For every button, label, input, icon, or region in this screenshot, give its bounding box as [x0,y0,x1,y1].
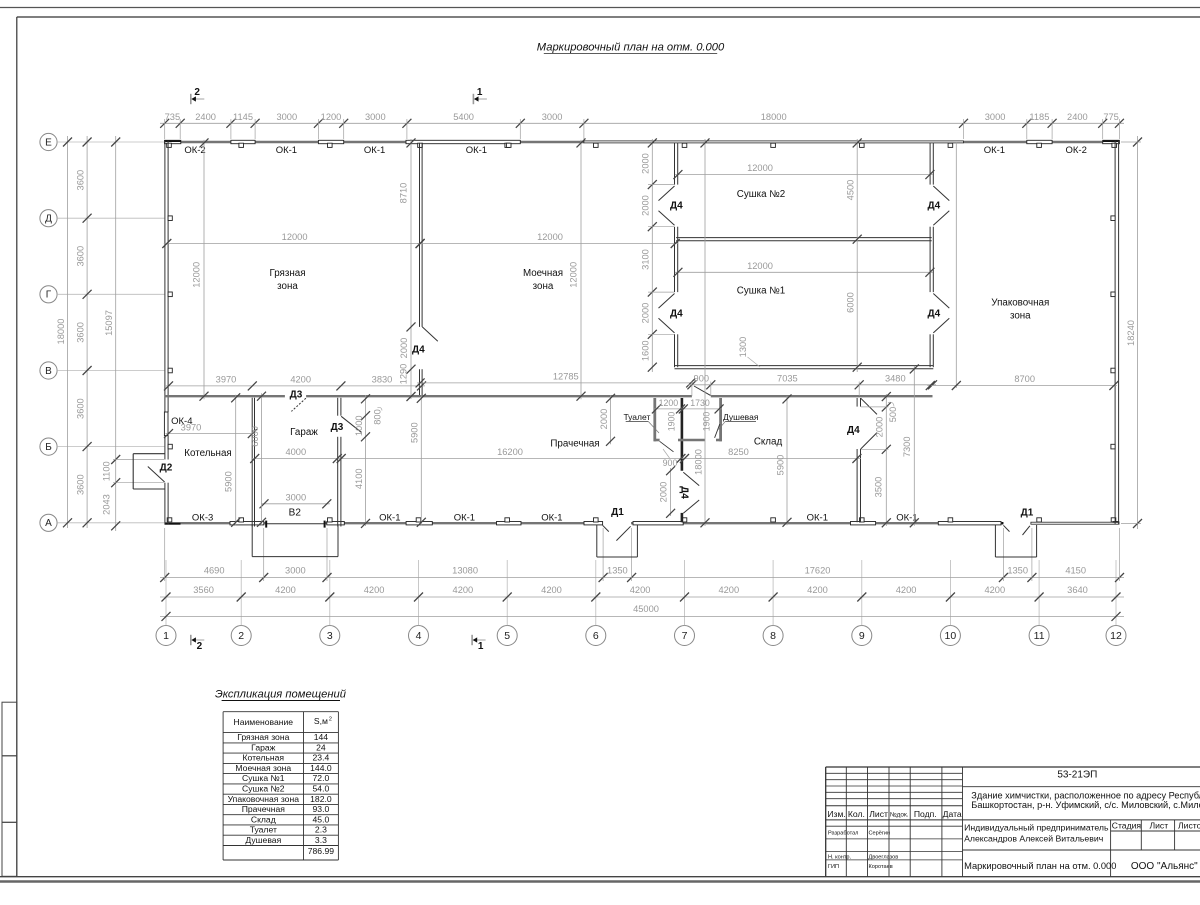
svg-text:Сушка №2: Сушка №2 [737,189,785,200]
svg-text:18000: 18000 [761,112,787,122]
svg-text:4: 4 [416,630,422,642]
svg-text:786.99: 786.99 [308,846,335,856]
svg-text:Котельная: Котельная [242,753,284,763]
svg-text:В: В [45,366,52,377]
svg-text:Д4: Д4 [847,425,860,436]
svg-text:Д4: Д4 [412,345,425,356]
svg-text:18240: 18240 [1126,320,1136,346]
svg-text:7: 7 [682,630,688,642]
svg-text:3600: 3600 [75,170,85,191]
svg-text:4200: 4200 [984,585,1005,595]
svg-text:13080: 13080 [452,565,478,575]
svg-text:ОК-1: ОК-1 [541,512,562,523]
svg-text:12000: 12000 [568,262,578,288]
svg-text:2: 2 [197,641,203,652]
svg-text:ОК-1: ОК-1 [984,145,1005,156]
svg-text:2: 2 [238,630,244,642]
svg-text:3640: 3640 [1067,585,1088,595]
svg-text:17620: 17620 [805,565,831,575]
svg-text:3600: 3600 [75,398,85,419]
svg-text:5: 5 [504,630,510,642]
svg-text:Гараж: Гараж [251,743,276,753]
svg-text:3560: 3560 [193,585,214,595]
svg-text:Д1: Д1 [611,507,624,518]
svg-text:4500: 4500 [846,180,856,201]
svg-text:Д4: Д4 [928,308,941,319]
svg-text:18000: 18000 [693,449,703,475]
svg-text:Г: Г [46,290,52,301]
svg-text:5900: 5900 [409,422,419,443]
svg-text:1350: 1350 [1007,565,1028,575]
svg-text:12000: 12000 [282,232,308,242]
svg-text:8700: 8700 [1014,374,1035,384]
svg-text:144: 144 [314,732,329,742]
svg-text:Александров Алексей Витальевич: Александров Алексей Витальевич [964,834,1103,844]
svg-text:4200: 4200 [630,585,651,595]
svg-text:Н. контр.: Н. контр. [828,854,852,860]
svg-text:12000: 12000 [537,232,563,242]
svg-text:зона: зона [533,281,554,292]
svg-text:3600: 3600 [75,246,85,267]
svg-text:2043: 2043 [102,494,112,515]
svg-text:12000: 12000 [191,262,201,288]
svg-text:2.3: 2.3 [315,825,327,835]
svg-text:Моечная зона: Моечная зона [235,763,291,773]
svg-text:Кол.: Кол. [848,809,865,819]
svg-text:Лист: Лист [1149,821,1168,831]
svg-text:Башкортостан, р-н. Уфимский, с: Башкортостан, р-н. Уфимский, с/с. Миловс… [971,800,1200,810]
svg-text:15097: 15097 [104,310,114,336]
svg-text:3.3: 3.3 [315,835,327,845]
svg-text:Разработал: Разработал [828,831,858,837]
svg-text:3: 3 [327,630,333,642]
svg-text:зона: зона [1010,310,1031,321]
svg-text:4000: 4000 [285,447,306,457]
svg-text:23.4: 23.4 [313,753,330,763]
svg-text:4200: 4200 [290,374,311,384]
svg-text:Двоеглазов: Двоеглазов [869,854,899,860]
svg-text:4200: 4200 [541,585,562,595]
svg-text:1145: 1145 [233,112,253,122]
svg-text:6: 6 [593,630,599,642]
svg-text:10: 10 [945,630,957,642]
svg-text:Наименование: Наименование [234,717,294,727]
svg-text:72.0: 72.0 [313,773,330,783]
svg-text:Д: Д [45,214,52,225]
svg-text:Сушка №1: Сушка №1 [737,286,785,297]
svg-text:900: 900 [663,458,678,468]
svg-text:45.0: 45.0 [313,814,330,824]
svg-text:ГИП: ГИП [828,864,839,870]
svg-text:ОК-1: ОК-1 [364,145,385,156]
svg-text:1730: 1730 [690,398,710,408]
svg-text:1100: 1100 [102,461,112,481]
svg-text:3000: 3000 [285,565,306,575]
svg-text:ООО "Альянс": ООО "Альянс" [1131,861,1198,872]
svg-text:735: 735 [165,112,181,122]
svg-text:2000: 2000 [659,482,669,503]
svg-text:7300: 7300 [902,436,912,457]
svg-text:№док.: №док. [890,811,909,818]
svg-text:53-21ЭП: 53-21ЭП [1057,770,1097,781]
svg-text:2000: 2000 [641,153,651,174]
svg-text:1: 1 [477,87,483,98]
svg-text:8: 8 [770,630,776,642]
svg-text:144.0: 144.0 [310,763,332,773]
svg-text:3600: 3600 [75,474,85,495]
svg-text:Б: Б [45,442,52,453]
svg-text:Сушка №2: Сушка №2 [242,784,285,794]
svg-text:12: 12 [1110,630,1122,642]
svg-text:Упаковочная: Упаковочная [991,297,1049,308]
svg-text:2: 2 [194,87,200,98]
svg-text:Стадия: Стадия [1112,821,1142,831]
svg-text:4690: 4690 [204,565,225,575]
svg-text:1900: 1900 [667,412,677,432]
svg-text:500: 500 [888,407,898,423]
svg-text:ОК-3: ОК-3 [192,512,213,523]
svg-text:5900: 5900 [224,471,234,492]
svg-text:Котельная: Котельная [184,448,231,459]
svg-text:12785: 12785 [553,372,579,382]
svg-text:Маркировочный план на отм. 0.0: Маркировочный план на отм. 0.000 [964,861,1116,871]
svg-text:1200: 1200 [321,112,342,122]
svg-text:Серёгин: Серёгин [869,831,891,837]
svg-text:18000: 18000 [56,319,66,345]
svg-text:2000: 2000 [641,303,651,324]
svg-text:Листов: Листов [1178,821,1200,831]
svg-text:Лист: Лист [869,809,888,819]
svg-text:Маркировочный план на отм. 0.0: Маркировочный план на отм. 0.000 [537,42,725,54]
svg-text:Туалет: Туалет [623,412,650,422]
svg-text:Дата: Дата [943,809,962,819]
svg-text:ОК-1: ОК-1 [379,512,400,523]
svg-text:Здание химчистки, расположенн: Здание химчистки, расположенное по адрес… [971,791,1200,801]
svg-text:Склад: Склад [251,814,276,824]
svg-text:4200: 4200 [275,585,296,595]
svg-text:Подп.: Подп. [914,809,937,819]
svg-text:12000: 12000 [747,163,773,173]
svg-text:Коротаев: Коротаев [869,864,893,870]
svg-text:24: 24 [316,743,326,753]
svg-text:900: 900 [694,373,710,383]
svg-text:2000: 2000 [599,409,609,430]
svg-text:8250: 8250 [728,447,749,457]
svg-text:Экспликация помещений: Экспликация помещений [215,689,346,701]
svg-text:Д4: Д4 [679,486,690,499]
svg-text:1600: 1600 [641,340,651,361]
svg-text:8710: 8710 [399,183,409,204]
svg-text:1: 1 [478,641,484,652]
svg-text:16200: 16200 [497,447,523,457]
svg-text:1350: 1350 [607,565,628,575]
svg-text:Д3: Д3 [331,422,344,433]
svg-text:ОК-1: ОК-1 [276,145,297,156]
svg-text:Упаковочная зона: Упаковочная зона [228,794,300,804]
svg-text:2: 2 [329,717,332,723]
svg-text:93.0: 93.0 [313,804,330,814]
svg-text:5900: 5900 [775,455,785,476]
svg-text:3000: 3000 [285,492,306,502]
svg-text:Д3: Д3 [290,390,303,401]
svg-text:1290: 1290 [399,364,409,385]
svg-text:S,м: S,м [314,716,328,726]
svg-text:3830: 3830 [372,374,393,384]
svg-text:Д4: Д4 [928,201,941,212]
svg-text:2400: 2400 [195,112,216,122]
svg-text:3000: 3000 [365,112,386,122]
svg-text:3000: 3000 [276,112,297,122]
svg-text:В2: В2 [289,508,302,519]
svg-text:2400: 2400 [1067,112,1088,122]
svg-text:4200: 4200 [896,585,917,595]
svg-text:3600: 3600 [75,322,85,343]
svg-text:4200: 4200 [718,585,739,595]
svg-text:182.0: 182.0 [310,794,332,804]
svg-text:3480: 3480 [885,373,906,383]
svg-text:2000: 2000 [399,338,409,359]
svg-text:Д2: Д2 [160,463,173,474]
svg-text:А: А [45,518,52,529]
svg-text:ОК-1: ОК-1 [807,512,828,523]
svg-text:5400: 5400 [453,112,474,122]
svg-text:зона: зона [277,281,298,292]
svg-text:2000: 2000 [641,195,651,216]
svg-text:3000: 3000 [542,112,563,122]
svg-text:Грязная зона: Грязная зона [237,732,289,742]
svg-text:Индивидуальный предприниматель: Индивидуальный предприниматель [964,823,1109,833]
svg-text:6000: 6000 [846,292,856,313]
svg-text:4150: 4150 [1065,565,1086,575]
svg-text:Прачечная: Прачечная [242,804,286,814]
svg-text:4200: 4200 [364,585,385,595]
svg-text:Грязная: Грязная [269,268,305,279]
svg-text:Душевая: Душевая [723,412,759,422]
svg-text:3970: 3970 [181,422,202,432]
svg-text:ОК-2: ОК-2 [184,145,205,156]
svg-text:9: 9 [859,630,865,642]
svg-text:1185: 1185 [1029,112,1049,122]
svg-text:1: 1 [163,630,169,642]
svg-text:Д4: Д4 [670,201,683,212]
svg-text:2000: 2000 [874,417,884,438]
svg-text:Туалет: Туалет [250,825,277,835]
svg-text:Д4: Д4 [670,308,683,319]
svg-text:Прачечная: Прачечная [550,439,599,450]
svg-text:4200: 4200 [807,585,828,595]
svg-text:6000: 6000 [250,426,260,447]
svg-text:7035: 7035 [777,373,798,383]
svg-text:Е: Е [45,137,52,148]
svg-text:1900: 1900 [702,412,712,432]
svg-text:Склад: Склад [754,437,783,448]
svg-text:45000: 45000 [633,604,659,614]
svg-text:4200: 4200 [453,585,474,595]
svg-text:1200: 1200 [659,398,679,408]
svg-text:ОК-1: ОК-1 [454,512,475,523]
svg-text:4100: 4100 [354,468,364,489]
svg-text:Душевая: Душевая [245,835,281,845]
svg-text:11: 11 [1034,630,1045,642]
svg-text:Гараж: Гараж [290,427,318,438]
svg-text:ОК-1: ОК-1 [466,145,487,156]
svg-text:3500: 3500 [873,477,883,498]
svg-text:1300: 1300 [738,337,748,358]
svg-text:775: 775 [1103,112,1119,122]
svg-text:54.0: 54.0 [313,784,330,794]
svg-text:Сушка №1: Сушка №1 [242,773,285,783]
svg-text:Моечная: Моечная [523,268,563,279]
svg-text:800: 800 [373,409,383,425]
svg-text:12000: 12000 [747,261,773,271]
svg-text:ОК-2: ОК-2 [1066,145,1087,156]
svg-text:3000: 3000 [985,112,1006,122]
svg-text:3970: 3970 [216,374,237,384]
svg-text:1000: 1000 [354,415,364,436]
svg-text:3100: 3100 [641,249,651,270]
svg-text:Д1: Д1 [1021,508,1034,519]
svg-text:Изм.: Изм. [827,809,845,819]
